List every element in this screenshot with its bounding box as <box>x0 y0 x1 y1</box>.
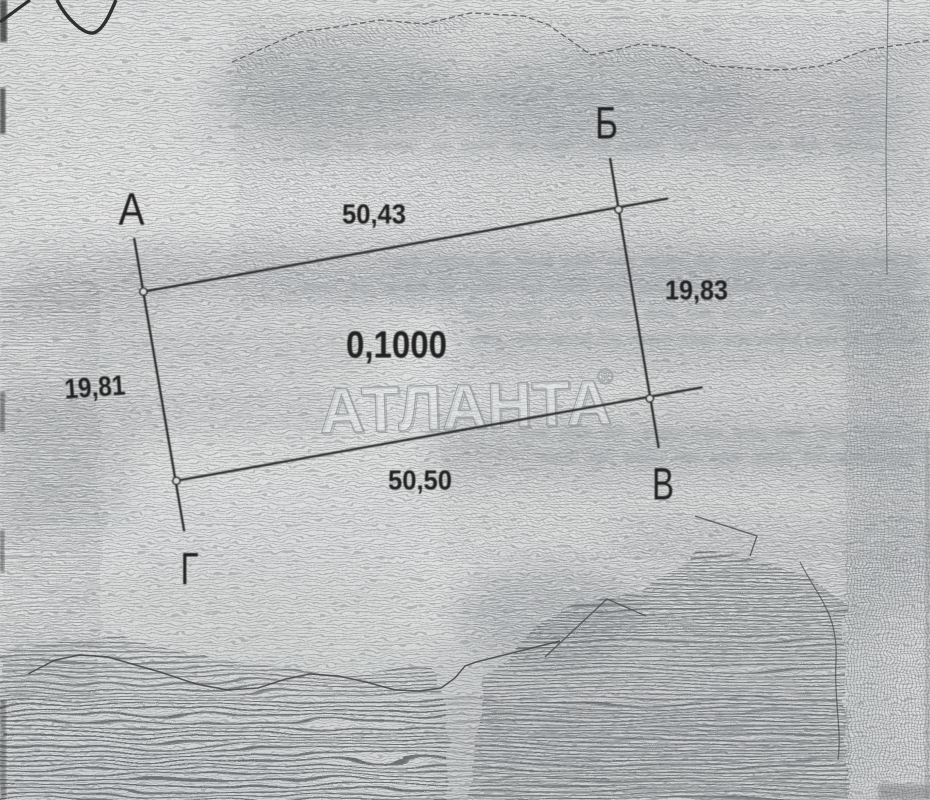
svg-text:Б: Б <box>595 98 618 149</box>
svg-text:®: ® <box>597 364 614 389</box>
svg-text:0,1000: 0,1000 <box>346 325 447 367</box>
svg-text:Г: Г <box>181 544 199 595</box>
svg-text:АТЛАНТА: АТЛАНТА <box>318 366 612 447</box>
svg-text:В: В <box>652 459 674 510</box>
svg-text:19,83: 19,83 <box>665 275 728 306</box>
svg-text:50,43: 50,43 <box>342 199 406 230</box>
svg-text:50,50: 50,50 <box>388 465 452 496</box>
svg-text:А: А <box>119 184 145 235</box>
svg-text:19,81: 19,81 <box>63 369 126 404</box>
